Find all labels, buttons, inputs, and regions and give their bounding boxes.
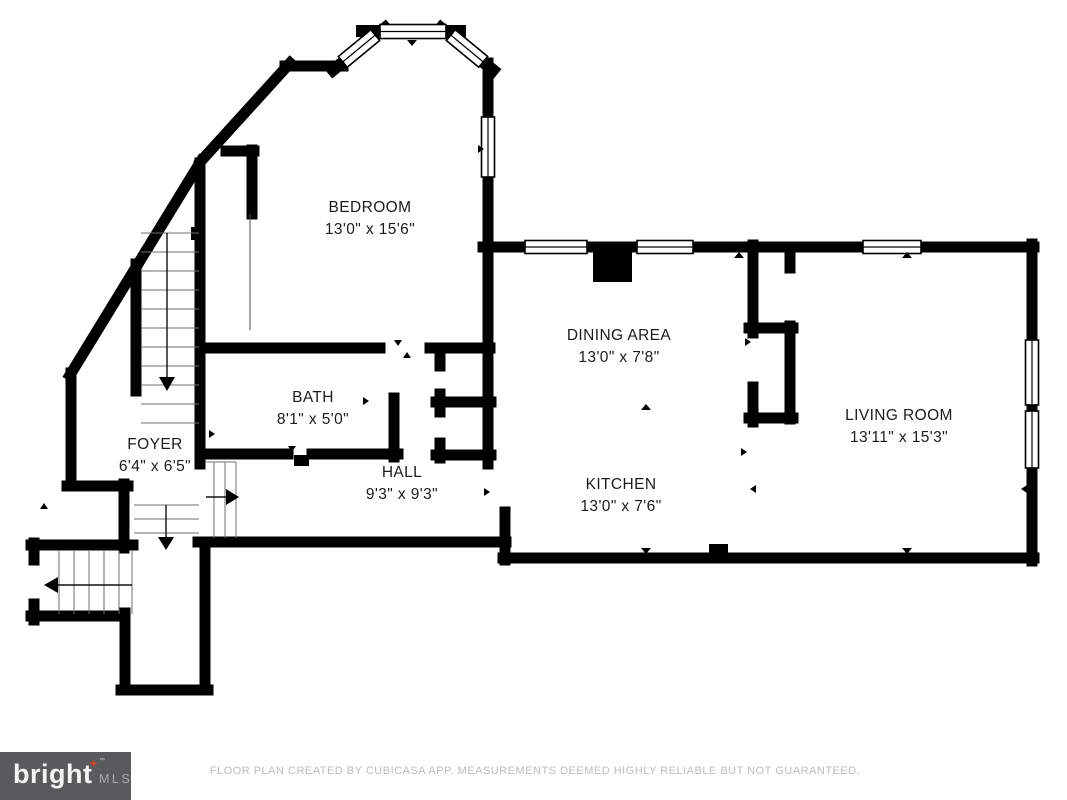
logo-mls-text: MLS bbox=[99, 772, 132, 786]
label-bath-dims: 8'1" x 5'0" bbox=[277, 411, 349, 428]
label-living-dims: 13'11" x 15'3" bbox=[850, 429, 948, 446]
disclaimer-text: FLOOR PLAN CREATED BY CUBICASA APP. MEAS… bbox=[150, 765, 920, 777]
dining-window-1 bbox=[525, 241, 587, 254]
label-bath-name: BATH bbox=[292, 389, 334, 406]
label-dining-name: DINING AREA bbox=[567, 327, 672, 344]
label-dining-dims: 13'0" x 7'8" bbox=[578, 349, 659, 366]
foyer-down-arrow bbox=[158, 537, 174, 550]
living-right-window-1 bbox=[1026, 340, 1039, 405]
label-kitchen-name: KITCHEN bbox=[586, 476, 657, 493]
logo-brand-text: bright bbox=[13, 759, 92, 790]
label-bedroom-dims: 13'0" x 15'6" bbox=[325, 221, 415, 238]
hall-up-arrow bbox=[226, 489, 239, 505]
chimney-block bbox=[593, 242, 632, 282]
stairs-down-arrow bbox=[159, 377, 175, 391]
floor-plan-page: BEDROOM 13'0" x 15'6" BATH 8'1" x 5'0" F… bbox=[0, 0, 1067, 800]
label-foyer-name: FOYER bbox=[127, 436, 182, 453]
bay-window-top bbox=[380, 25, 446, 39]
walls bbox=[31, 28, 1034, 690]
bath-door-block bbox=[294, 455, 309, 466]
entry-down-arrow bbox=[44, 577, 58, 593]
stairs-foyer-down bbox=[134, 505, 199, 550]
dining-window-2 bbox=[637, 241, 693, 254]
label-hall-dims: 9'3" x 9'3" bbox=[366, 486, 438, 503]
stairs-entry bbox=[44, 551, 132, 614]
stairs-upper bbox=[141, 233, 199, 423]
label-foyer-dims: 6'4" x 6'5" bbox=[119, 458, 191, 475]
floor-plan-canvas: BEDROOM 13'0" x 15'6" BATH 8'1" x 5'0" F… bbox=[0, 0, 1067, 800]
logo-star-icon: ✦ bbox=[88, 756, 99, 772]
label-kitchen-dims: 13'0" x 7'6" bbox=[580, 498, 661, 515]
door-markers bbox=[40, 40, 1027, 554]
label-bedroom-name: BEDROOM bbox=[329, 199, 412, 216]
label-living-name: LIVING ROOM bbox=[845, 407, 953, 424]
bright-mls-logo: bright ✦ ™ MLS bbox=[0, 752, 131, 800]
living-top-window bbox=[863, 241, 921, 254]
bedroom-right-window bbox=[482, 117, 495, 177]
bay-window-right bbox=[446, 30, 487, 68]
label-hall-name: HALL bbox=[382, 464, 422, 481]
kitchen-door-block bbox=[709, 544, 728, 560]
stairs-foyer-up bbox=[205, 462, 239, 538]
logo-trademark: ™ bbox=[99, 758, 105, 764]
living-right-window-2 bbox=[1026, 411, 1039, 468]
